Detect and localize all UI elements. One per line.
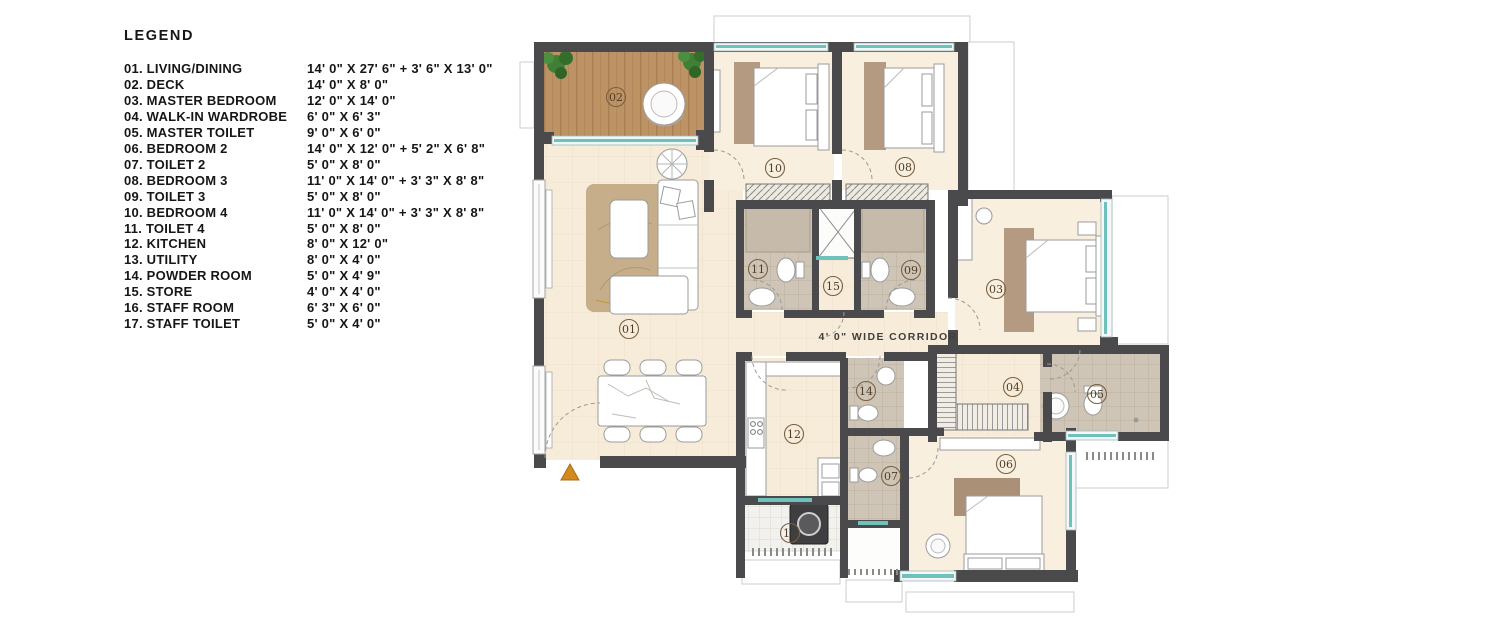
toilet3-shower (862, 206, 924, 252)
kitchen-counter-top (766, 362, 842, 376)
svg-text:15: 15 (826, 280, 840, 293)
master-tv-unit (956, 198, 972, 260)
bedroom3-rug (864, 62, 886, 150)
room-staff-floor (846, 528, 902, 572)
room-label-09: 09 (902, 261, 921, 280)
powder-basin (877, 367, 895, 385)
deck-chair (643, 83, 685, 126)
bedroom2-ledge (940, 438, 1040, 450)
dining-chair (640, 427, 666, 442)
dining-chair (676, 427, 702, 442)
room-label-14: 14 (857, 382, 876, 401)
svg-text:14: 14 (859, 385, 873, 398)
svg-text:05: 05 (1090, 388, 1104, 401)
plant-stand (657, 149, 687, 179)
svg-text:02: 02 (609, 91, 623, 104)
dining-table (598, 376, 706, 426)
room-label-10: 10 (766, 159, 785, 178)
walkin-rail-left (934, 352, 956, 430)
coffee-table (610, 200, 648, 258)
svg-text:04: 04 (1006, 381, 1020, 394)
room-label-07: 07 (882, 467, 901, 486)
room-label-12: 12 (785, 425, 804, 444)
toilet4-basin (749, 288, 775, 306)
walkin-rail-bottom (956, 404, 1028, 430)
room-label-06: 06 (997, 455, 1016, 474)
living-window-upper (533, 180, 552, 298)
living-window-lower (533, 366, 552, 454)
room-label-03: 03 (987, 280, 1006, 299)
room-label-04: 04 (1004, 378, 1023, 397)
svg-text:08: 08 (898, 161, 912, 174)
entrance-marker (561, 464, 579, 480)
toilet3-basin (889, 288, 915, 306)
svg-text:09: 09 (904, 264, 918, 277)
room-label-01: 01 (620, 320, 639, 339)
room-label-11: 11 (749, 260, 768, 279)
svg-text:13: 13 (783, 527, 797, 540)
dining-chair (604, 360, 630, 375)
toilet2-basin (873, 440, 895, 456)
room-label-02: 02 (607, 88, 626, 107)
dining-chair (676, 360, 702, 375)
bedroom2-bed (966, 496, 1042, 554)
svg-text:11: 11 (751, 263, 765, 276)
toilet4-shower (746, 206, 810, 252)
room-label-13: 13 (781, 524, 800, 543)
floor-plan-page: { "legend": { "title": "LEGEND", "items"… (0, 0, 1500, 625)
kitchen-sink (822, 464, 839, 478)
room-label-15: 15 (824, 277, 843, 296)
svg-text:07: 07 (884, 470, 898, 483)
svg-text:01: 01 (622, 323, 636, 336)
dining-chair (640, 360, 666, 375)
master-stool (976, 208, 992, 224)
dining-chair (604, 427, 630, 442)
svg-text:12: 12 (787, 428, 801, 441)
svg-text:10: 10 (768, 162, 782, 175)
sofa-chaise (610, 276, 688, 314)
svg-text:03: 03 (989, 283, 1003, 296)
corridor-label: 4' 0" WIDE CORRIDOR (818, 331, 957, 343)
floor-plan-svg: 4' 0" WIDE CORRIDOR 01 02 03 04 05 06 07… (0, 0, 1500, 625)
svg-text:06: 06 (999, 458, 1013, 471)
room-label-05: 05 (1088, 385, 1107, 404)
room-label-08: 08 (896, 158, 915, 177)
